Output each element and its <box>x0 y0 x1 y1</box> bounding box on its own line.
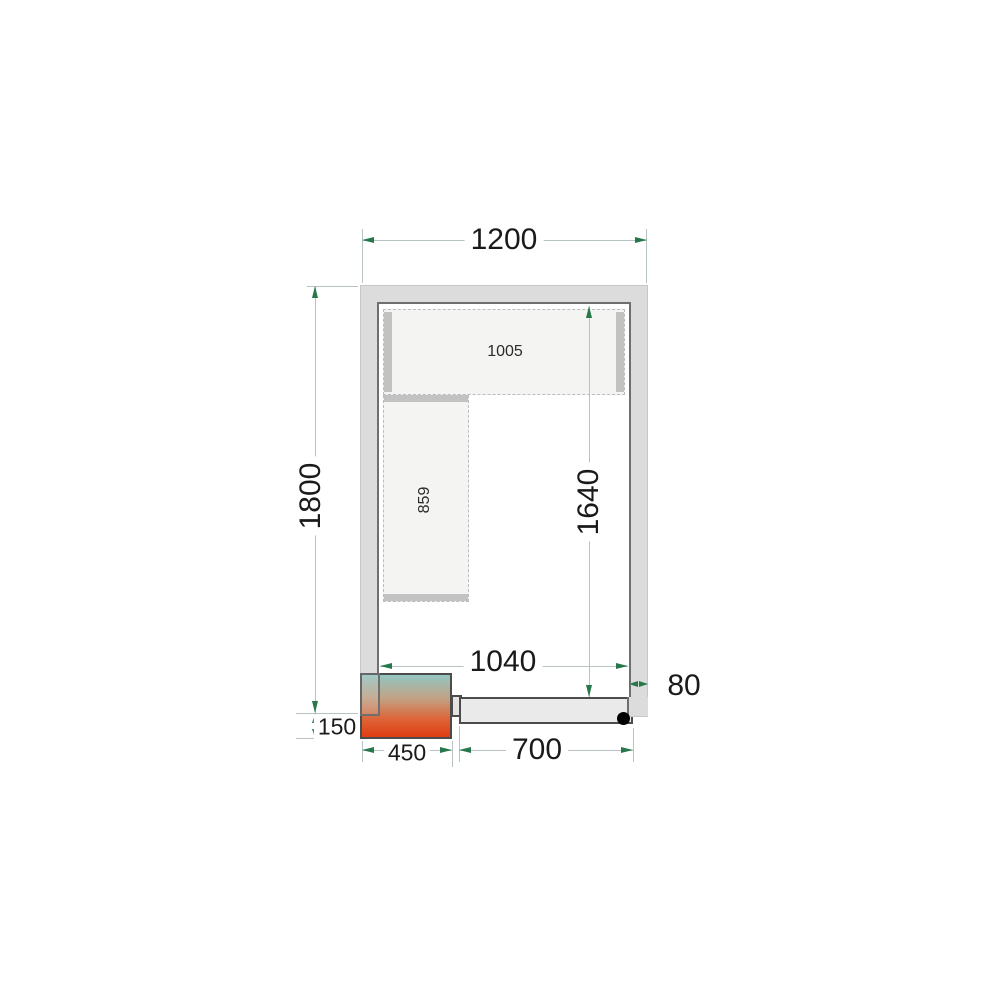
arrow-right-icon <box>635 237 647 243</box>
arrow-up-icon <box>586 306 592 318</box>
right-wall-bottom <box>627 697 648 717</box>
door-width-label: 700 <box>506 734 568 766</box>
side-shelf-top-support <box>384 395 468 402</box>
outer-depth-label: 1800 <box>295 457 327 536</box>
arrow-left-icon <box>459 747 471 753</box>
unit-width-label: 450 <box>384 741 430 766</box>
arrow-down-icon <box>312 701 318 713</box>
back-shelf-left-support <box>384 312 392 392</box>
arrow-down-icon <box>586 685 592 697</box>
arrow-left-icon <box>362 747 374 753</box>
arrow-left-icon <box>362 237 374 243</box>
side-shelf-bottom-support <box>384 594 468 601</box>
arrow-left-icon <box>380 663 392 669</box>
inner-depth-label: 1640 <box>573 463 605 542</box>
unit-offset-label: 150 <box>314 715 360 740</box>
arrow-right-icon <box>616 663 628 669</box>
wall-outline-over-unit <box>360 673 380 716</box>
arrow-right-icon <box>440 747 452 753</box>
wall-thickness-label: 80 <box>661 670 706 702</box>
arrow-left-icon <box>629 681 638 687</box>
drawing-canvas: 1005 859 1200 1800 1640 1040 80 150 450 … <box>0 0 1000 1000</box>
door-handle-dot <box>617 712 630 725</box>
side-shelf-dimension-label: 859 <box>417 487 433 514</box>
extension-line <box>633 728 634 762</box>
arrow-right-icon <box>621 747 633 753</box>
arrow-up-icon <box>312 286 318 298</box>
inner-width-label: 1040 <box>464 646 543 678</box>
door-leaf <box>459 697 633 724</box>
arrow-right-icon <box>639 681 648 687</box>
extension-line <box>459 726 460 762</box>
outer-width-label: 1200 <box>465 224 544 256</box>
extension-line <box>452 741 453 767</box>
back-shelf-right-support <box>616 312 624 392</box>
back-shelf-dimension-label: 1005 <box>487 344 523 360</box>
